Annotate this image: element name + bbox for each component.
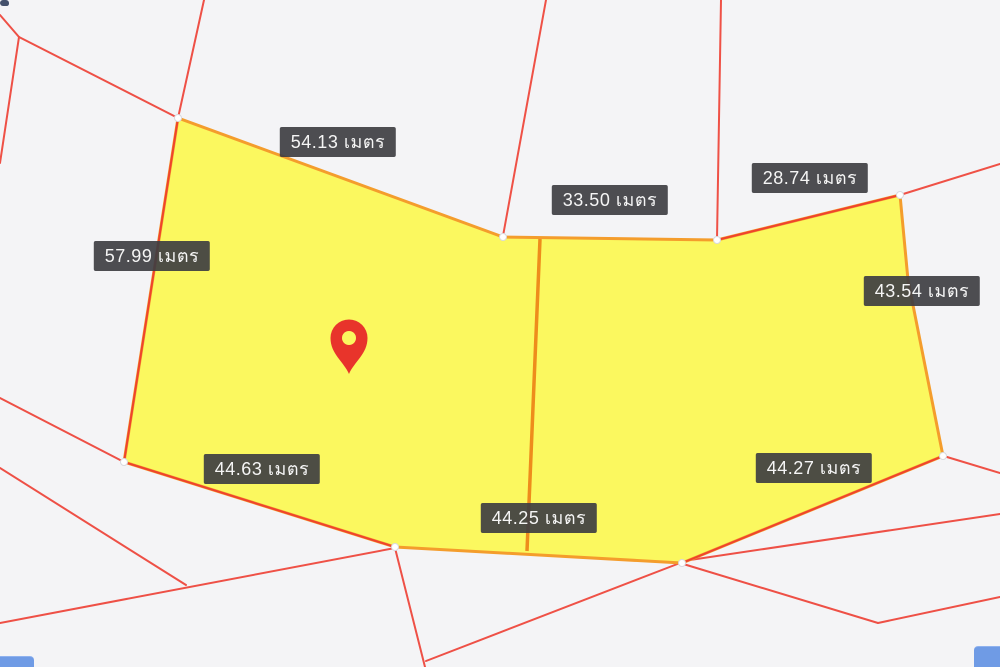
map-viewport[interactable]: 54.13 เมตร 33.50 เมตร 28.74 เมตร 57.99 เ…: [0, 0, 1000, 667]
pin-hole: [342, 331, 356, 345]
ui-fragment-bottom-left-button[interactable]: [0, 656, 34, 667]
parcel-vertex-dot: [679, 560, 686, 567]
ui-fragment-bottom-right-button[interactable]: [974, 646, 1000, 667]
parcel-vertex-dot: [897, 192, 904, 199]
map-canvas[interactable]: [0, 0, 1000, 667]
ui-fragment-top-left: [0, 0, 9, 6]
parcel-vertex-dot: [940, 453, 947, 460]
parcel-vertex-dot: [714, 237, 721, 244]
parcel-vertex-dot: [500, 234, 507, 241]
parcel-vertex-dot: [175, 115, 182, 122]
parcel-vertex-dot: [121, 459, 128, 466]
parcel-vertex-dot: [392, 544, 399, 551]
